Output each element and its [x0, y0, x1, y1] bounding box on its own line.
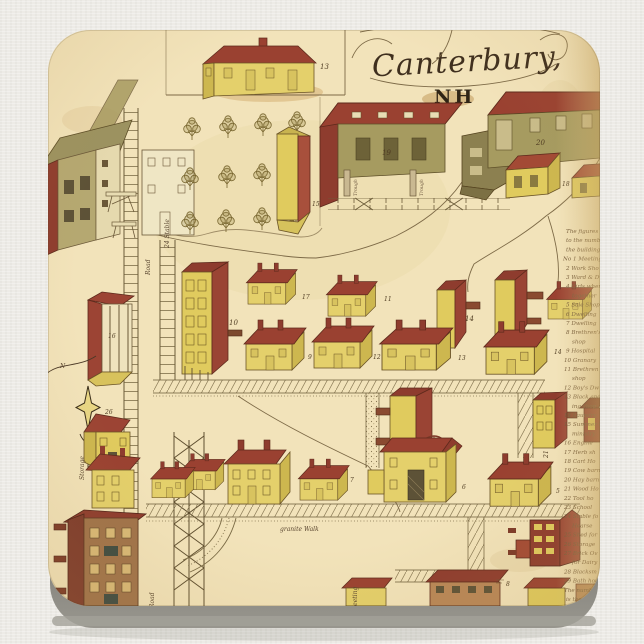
paper-vignette: [48, 30, 600, 606]
coaster-product-photo: Canterbury, NH: [0, 0, 644, 644]
vintage-map-coaster: Canterbury, NH: [0, 0, 644, 644]
coaster-edge-highlight: [52, 616, 596, 626]
map-art: Canterbury, NH: [40, 24, 612, 613]
